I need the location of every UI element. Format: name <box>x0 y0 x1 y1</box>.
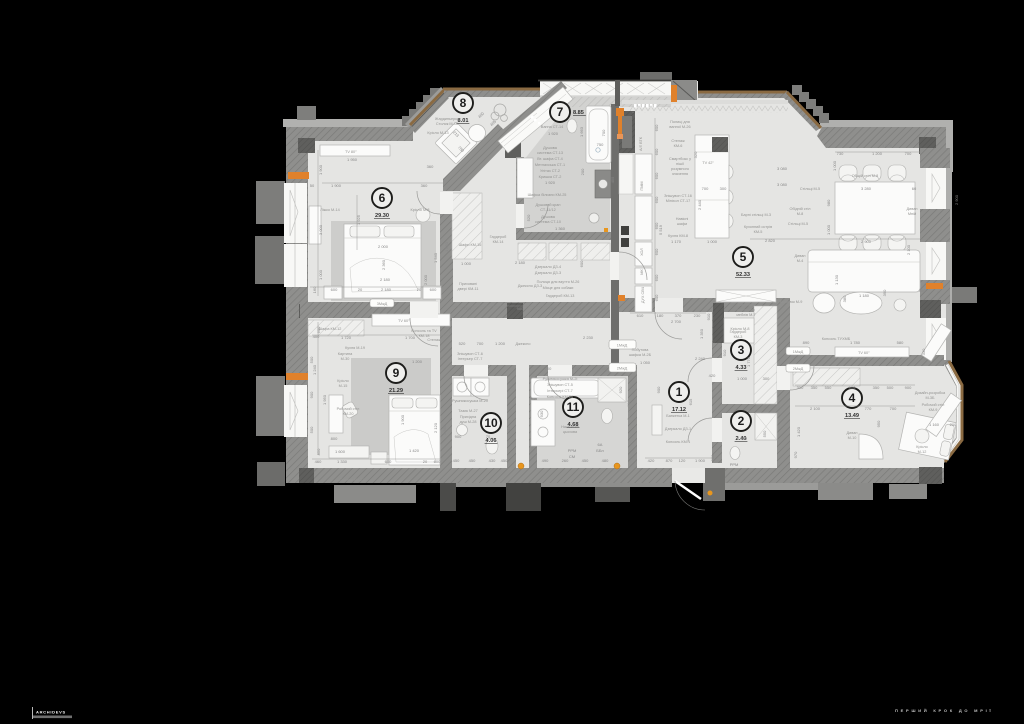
svg-text:5 519: 5 519 <box>658 224 663 235</box>
svg-text:4: 4 <box>849 391 856 405</box>
svg-text:2 000: 2 000 <box>378 244 389 249</box>
svg-text:380: 380 <box>842 295 847 302</box>
svg-text:М-8: М-8 <box>797 212 804 216</box>
svg-text:4.33: 4.33 <box>736 365 747 371</box>
svg-text:Гардероб КМ-13: Гардероб КМ-13 <box>546 294 575 298</box>
svg-text:1 330: 1 330 <box>337 459 348 464</box>
svg-text:1 720: 1 720 <box>341 335 352 340</box>
svg-text:Вт. шафа СТ-4: Вт. шафа СТ-4 <box>537 157 563 161</box>
svg-text:11: 11 <box>567 400 580 414</box>
svg-text:600: 600 <box>654 196 659 203</box>
svg-text:600: 600 <box>316 326 321 333</box>
svg-text:1 170: 1 170 <box>671 239 682 244</box>
svg-text:М-15: М-15 <box>339 384 348 388</box>
svg-text:600: 600 <box>434 459 441 464</box>
svg-text:2 180: 2 180 <box>381 287 392 292</box>
svg-text:Мній: Мній <box>908 212 916 216</box>
svg-text:TV 60″: TV 60″ <box>398 319 410 323</box>
svg-text:3: 3 <box>738 343 745 357</box>
svg-text:750: 750 <box>597 142 604 147</box>
svg-text:Диван: Диван <box>795 254 806 258</box>
svg-text:600: 600 <box>331 287 338 292</box>
svg-text:2 230: 2 230 <box>583 335 594 340</box>
svg-text:2 180: 2 180 <box>380 277 391 282</box>
svg-text:450: 450 <box>582 458 589 463</box>
svg-text:50: 50 <box>310 183 315 188</box>
svg-text:20: 20 <box>417 287 422 292</box>
svg-text:Шафи КМ-16: Шафи КМ-16 <box>459 243 482 247</box>
svg-text:29.30: 29.30 <box>375 213 389 219</box>
svg-text:600: 600 <box>654 148 659 155</box>
svg-text:1 780: 1 780 <box>850 340 861 345</box>
svg-text:200: 200 <box>950 422 957 427</box>
svg-text:700: 700 <box>573 366 580 371</box>
svg-text:Крісло: Крісло <box>916 445 927 449</box>
svg-text:1 000: 1 000 <box>461 261 472 266</box>
svg-text:1 900: 1 900 <box>318 164 323 175</box>
svg-text:600: 600 <box>579 260 584 267</box>
svg-text:Комплект: Комплект <box>738 303 755 307</box>
svg-text:Рушникосушка М-21: Рушникосушка М-21 <box>452 399 488 403</box>
svg-text:Картина: Картина <box>338 352 353 356</box>
svg-text:душ М-28: душ М-28 <box>460 420 477 424</box>
svg-text:500: 500 <box>309 426 314 433</box>
svg-text:1 900: 1 900 <box>400 414 405 425</box>
svg-text:500: 500 <box>887 385 894 390</box>
svg-text:770: 770 <box>865 406 872 411</box>
svg-text:1МжД: 1МжД <box>793 350 804 354</box>
svg-text:шафка М-2Б: шафка М-2Б <box>629 353 652 357</box>
svg-text:900: 900 <box>517 306 524 311</box>
svg-text:1 000: 1 000 <box>826 224 831 235</box>
svg-text:490: 490 <box>542 458 549 463</box>
svg-text:980: 980 <box>826 199 831 206</box>
svg-text:Побутова: Побутова <box>632 348 650 352</box>
svg-text:Полиця для взуття М-26: Полиця для взуття М-26 <box>537 280 580 284</box>
svg-text:280: 280 <box>710 454 715 461</box>
svg-text:180: 180 <box>657 313 664 318</box>
svg-text:РРМ: РРМ <box>568 448 577 453</box>
svg-text:2: 2 <box>738 414 745 428</box>
svg-text:КМ-18: КМ-18 <box>419 334 430 338</box>
svg-text:КМ-5: КМ-5 <box>754 230 763 234</box>
svg-text:2 900: 2 900 <box>954 194 959 205</box>
svg-text:М-3Б: М-3Б <box>925 396 935 400</box>
svg-text:900: 900 <box>309 391 314 398</box>
svg-text:Настільна: Настільна <box>561 425 580 429</box>
svg-text:1 240: 1 240 <box>312 364 317 375</box>
svg-text:300: 300 <box>763 376 770 381</box>
svg-text:1 925: 1 925 <box>356 214 361 225</box>
svg-text:700: 700 <box>545 366 552 371</box>
svg-text:Інтерьері СТ-7: Інтерьері СТ-7 <box>547 389 572 393</box>
svg-text:Дизайн-розробка: Дизайн-розробка <box>915 391 946 395</box>
svg-text:1 000: 1 000 <box>737 436 748 441</box>
svg-text:Гардероб: Гардероб <box>730 330 748 334</box>
svg-text:700: 700 <box>477 341 484 346</box>
svg-text:Місце для собаки: Місце для собаки <box>543 286 574 290</box>
svg-text:700: 700 <box>905 151 912 156</box>
svg-text:200: 200 <box>580 168 585 175</box>
svg-text:1 000: 1 000 <box>318 269 323 280</box>
svg-text:цьохова: цьохова <box>563 430 578 434</box>
svg-text:ХОЛ: ХОЛ <box>640 248 644 256</box>
svg-text:370: 370 <box>675 313 682 318</box>
svg-text:Дзеркало ДЗ-3: Дзеркало ДЗ-3 <box>535 271 561 275</box>
svg-text:450: 450 <box>469 458 476 463</box>
svg-text:120: 120 <box>679 458 686 463</box>
svg-text:2 440: 2 440 <box>697 199 702 210</box>
svg-text:Знішувон СТ-5: Знішувон СТ-5 <box>547 383 573 387</box>
svg-text:Джексно ДЗ-3: Джексно ДЗ-3 <box>518 284 542 288</box>
svg-text:910: 910 <box>722 349 727 356</box>
svg-text:450: 450 <box>501 458 508 463</box>
svg-text:3 000: 3 000 <box>318 224 323 235</box>
svg-text:600: 600 <box>654 172 659 179</box>
svg-text:Дзеркало ДЗ-4: Дзеркало ДЗ-4 <box>535 265 561 269</box>
svg-text:Консоль КМ-1: Консоль КМ-1 <box>666 440 690 444</box>
svg-text:1 160: 1 160 <box>929 422 940 427</box>
svg-text:Кухонний острів: Кухонний острів <box>744 225 772 229</box>
svg-text:Навісні: Навісні <box>676 217 689 221</box>
svg-text:Карниз М-2: Карниз М-2 <box>627 400 631 420</box>
svg-text:700: 700 <box>601 129 606 136</box>
svg-text:3 550: 3 550 <box>442 424 447 435</box>
svg-text:600: 600 <box>448 326 453 333</box>
svg-text:900: 900 <box>455 434 462 439</box>
svg-text:Робочий стіл: Робочий стіл <box>337 407 360 411</box>
svg-text:700: 700 <box>549 306 556 311</box>
svg-text:ванної М-26: ванної М-26 <box>669 125 690 129</box>
svg-text:Мініхол СТ-17: Мініхол СТ-17 <box>666 199 691 203</box>
svg-text:260: 260 <box>562 458 569 463</box>
svg-text:320: 320 <box>693 151 698 158</box>
svg-text:1 850: 1 850 <box>444 241 449 252</box>
svg-text:950: 950 <box>876 420 881 427</box>
svg-text:330: 330 <box>921 348 926 355</box>
svg-text:ARCHIDEVS: ARCHIDEVS <box>36 710 66 715</box>
svg-text:3МжД: 3МжД <box>377 302 388 306</box>
svg-text:360: 360 <box>421 183 428 188</box>
svg-text:610: 610 <box>637 313 644 318</box>
svg-text:1 360: 1 360 <box>555 226 566 231</box>
svg-text:9: 9 <box>393 366 400 380</box>
svg-text:2 240: 2 240 <box>695 356 706 361</box>
svg-text:двері КМ-11: двері КМ-11 <box>458 287 479 291</box>
svg-text:1 950: 1 950 <box>347 157 358 162</box>
svg-text:800: 800 <box>331 436 338 441</box>
svg-text:РРМ: РРМ <box>730 462 739 467</box>
svg-text:Полиці для: Полиці для <box>670 120 690 124</box>
svg-text:Диван: Диван <box>847 431 858 435</box>
svg-text:1 950: 1 950 <box>322 394 327 405</box>
svg-text:система СТ-13: система СТ-13 <box>537 151 563 155</box>
svg-text:1 000: 1 000 <box>461 306 472 311</box>
svg-text:430: 430 <box>489 458 496 463</box>
svg-text:розумного: розумного <box>671 167 689 171</box>
svg-text:Обідній стіл: Обідній стіл <box>790 207 811 211</box>
svg-text:1 770: 1 770 <box>746 356 751 367</box>
svg-text:Банкетка М-1: Банкетка М-1 <box>666 414 690 418</box>
svg-text:1 420: 1 420 <box>796 426 801 437</box>
svg-text:550: 550 <box>762 430 767 437</box>
svg-text:Шафа КМ-12: Шафа КМ-12 <box>319 327 342 331</box>
svg-text:2 900: 2 900 <box>861 239 872 244</box>
svg-text:Консоль ТУХМБ: Консоль ТУХМБ <box>822 337 851 341</box>
svg-text:7: 7 <box>557 105 564 119</box>
svg-text:1 050: 1 050 <box>640 360 651 365</box>
svg-text:1: 1 <box>676 385 683 399</box>
svg-text:310: 310 <box>797 385 804 390</box>
svg-text:480: 480 <box>602 458 609 463</box>
svg-text:2 700: 2 700 <box>671 319 682 324</box>
svg-text:230: 230 <box>694 313 701 318</box>
svg-text:1 920: 1 920 <box>548 131 559 136</box>
svg-text:2 360: 2 360 <box>381 259 386 270</box>
svg-text:1 200: 1 200 <box>872 151 883 156</box>
svg-text:М-30: М-30 <box>341 357 350 361</box>
svg-text:900: 900 <box>919 288 926 293</box>
svg-text:20: 20 <box>423 459 428 464</box>
svg-text:Смартбокс у: Смартбокс у <box>669 157 691 161</box>
svg-text:система СТ-10: система СТ-10 <box>535 220 561 224</box>
svg-text:Ванна СТ-14: Ванна СТ-14 <box>541 125 563 129</box>
svg-text:Душова: Душова <box>541 215 556 219</box>
svg-text:3 080: 3 080 <box>777 182 788 187</box>
svg-text:А/Л ВТК: А/Л ВТК <box>639 136 643 151</box>
svg-text:ПММ: ПММ <box>640 181 644 190</box>
svg-text:8: 8 <box>460 96 467 110</box>
svg-text:1 130: 1 130 <box>834 274 839 285</box>
svg-text:ББн: ББн <box>596 448 603 453</box>
svg-text:10: 10 <box>484 416 498 430</box>
svg-text:меблів М-7: меблів М-7 <box>736 313 755 317</box>
svg-text:TV 80″: TV 80″ <box>345 150 357 154</box>
svg-text:КМ-9: КМ-9 <box>929 408 938 412</box>
svg-text:17.12: 17.12 <box>672 407 686 413</box>
svg-text:Стільці М-5: Стільці М-5 <box>800 187 820 191</box>
svg-text:1 180: 1 180 <box>859 293 870 298</box>
svg-text:600: 600 <box>654 274 659 281</box>
svg-text:шафи: шафи <box>677 222 687 226</box>
svg-text:М-12: М-12 <box>918 450 927 454</box>
svg-text:Знішувон СТ-6: Знішувон СТ-6 <box>457 352 483 356</box>
svg-text:2 180: 2 180 <box>515 260 526 265</box>
svg-text:850: 850 <box>316 448 321 455</box>
svg-text:890: 890 <box>803 340 810 345</box>
svg-text:Крісло М-8: Крісло М-8 <box>410 208 429 212</box>
svg-text:Килимок М-9: Килимок М-9 <box>780 300 803 304</box>
svg-text:350: 350 <box>811 385 818 390</box>
svg-text:2 100: 2 100 <box>810 406 821 411</box>
svg-text:СТ-11/12: СТ-11/12 <box>540 208 555 212</box>
svg-text:1 900: 1 900 <box>695 458 706 463</box>
svg-text:1 000: 1 000 <box>737 376 748 381</box>
svg-text:300: 300 <box>720 186 727 191</box>
svg-text:Душовий кран: Душовий кран <box>535 203 560 207</box>
svg-text:2МжД: 2МжД <box>617 367 628 371</box>
svg-text:900: 900 <box>656 386 661 393</box>
svg-text:Кришка СТ-2: Кришка СТ-2 <box>539 175 562 179</box>
svg-text:970: 970 <box>793 451 798 458</box>
svg-text:1 200: 1 200 <box>495 341 506 346</box>
svg-text:TV 42″: TV 42″ <box>702 161 714 165</box>
svg-text:390: 390 <box>882 289 887 296</box>
svg-text:Дзеркало ДЗ-1: Дзеркало ДЗ-1 <box>665 427 691 431</box>
svg-text:2 100: 2 100 <box>906 244 911 255</box>
svg-text:Інтерьер СТ-7: Інтерьер СТ-7 <box>458 357 483 361</box>
svg-text:Ліжко М-14: Ліжко М-14 <box>320 208 339 212</box>
svg-text:TV 60″: TV 60″ <box>858 351 870 355</box>
svg-text:М-4: М-4 <box>797 259 804 263</box>
svg-text:420: 420 <box>709 373 716 378</box>
svg-text:20: 20 <box>358 287 363 292</box>
svg-text:3 280: 3 280 <box>861 186 872 191</box>
svg-text:600: 600 <box>654 248 659 255</box>
svg-text:460: 460 <box>315 459 322 464</box>
svg-text:700: 700 <box>702 186 709 191</box>
svg-text:455: 455 <box>610 176 615 183</box>
svg-text:700: 700 <box>890 406 897 411</box>
svg-text:3 080: 3 080 <box>777 166 788 171</box>
svg-text:900: 900 <box>575 306 582 311</box>
svg-text:ДУХ СВЧ: ДУХ СВЧ <box>641 286 645 303</box>
svg-text:400: 400 <box>601 366 608 371</box>
svg-text:6: 6 <box>379 191 386 205</box>
svg-text:СМ: СМ <box>569 454 575 459</box>
svg-text:1 540: 1 540 <box>433 252 438 263</box>
svg-text:600: 600 <box>430 287 437 292</box>
svg-text:Душова: Душова <box>543 146 558 150</box>
svg-text:70: 70 <box>486 434 491 439</box>
svg-text:1 663: 1 663 <box>579 126 584 137</box>
svg-text:60: 60 <box>912 186 917 191</box>
svg-text:1 200: 1 200 <box>412 359 423 364</box>
svg-text:930: 930 <box>539 410 544 417</box>
svg-text:790: 790 <box>599 306 606 311</box>
svg-text:870: 870 <box>666 458 673 463</box>
svg-text:615: 615 <box>688 398 693 405</box>
svg-text:600: 600 <box>385 459 392 464</box>
svg-text:1 000: 1 000 <box>707 239 718 244</box>
svg-text:2МжД: 2МжД <box>793 367 804 371</box>
svg-text:1 900: 1 900 <box>331 183 342 188</box>
svg-text:8.01: 8.01 <box>458 118 469 124</box>
svg-text:Приховані: Приховані <box>459 282 477 286</box>
svg-text:900: 900 <box>905 385 912 390</box>
svg-text:450: 450 <box>453 458 460 463</box>
svg-text:Кухня М-19: Кухня М-19 <box>345 346 365 350</box>
svg-text:Кухня КМ-8: Кухня КМ-8 <box>668 234 688 238</box>
svg-text:Крісло М-13: Крісло М-13 <box>427 131 448 135</box>
svg-text:М-10: М-10 <box>848 436 857 440</box>
svg-text:2 820: 2 820 <box>765 238 776 243</box>
svg-text:520: 520 <box>459 341 466 346</box>
svg-text:13.49: 13.49 <box>845 413 859 419</box>
svg-text:нішії: нішії <box>676 162 685 166</box>
svg-text:Консоль та TV: Консоль та TV <box>411 329 437 333</box>
svg-text:МК: МК <box>640 269 644 275</box>
svg-text:ПЕРШИЙ КРОК ДО МРІЇ: ПЕРШИЙ КРОК ДО МРІЇ <box>895 708 993 713</box>
svg-text:Робочий стіл: Робочий стіл <box>922 403 945 407</box>
svg-text:400: 400 <box>313 334 320 339</box>
svg-text:КМ-3: КМ-3 <box>734 335 743 339</box>
svg-text:Прихідна: Прихідна <box>460 415 477 419</box>
svg-text:520: 520 <box>526 214 531 221</box>
svg-text:Стелаж: Стелаж <box>671 139 685 143</box>
svg-text:1 700: 1 700 <box>405 335 416 340</box>
svg-text:600: 600 <box>654 124 659 131</box>
svg-text:900: 900 <box>849 385 856 390</box>
svg-text:1 600: 1 600 <box>335 449 346 454</box>
svg-text:Консоль КМ-26: Консоль КМ-26 <box>547 395 574 399</box>
svg-text:600: 600 <box>654 294 659 301</box>
svg-text:Тазик М-27: Тазик М-27 <box>458 409 477 413</box>
svg-text:910: 910 <box>706 313 711 320</box>
svg-text:6А: 6А <box>598 442 603 447</box>
svg-text:Жардиньерка: Жардиньерка <box>435 117 460 121</box>
svg-text:корпусних: корпусних <box>737 308 755 312</box>
svg-text:Крісло: Крісло <box>337 379 348 383</box>
svg-text:1МжД: 1МжД <box>617 344 628 348</box>
svg-text:543: 543 <box>506 426 511 433</box>
svg-text:2 120: 2 120 <box>433 422 438 433</box>
svg-text:Знішувон СТ-16: Знішувон СТ-16 <box>664 194 692 198</box>
svg-text:350: 350 <box>873 385 880 390</box>
svg-text:КМ-6: КМ-6 <box>674 144 683 148</box>
svg-text:Шафка білизни КМ-25: Шафка білизни КМ-25 <box>528 193 567 197</box>
svg-text:920: 920 <box>618 386 623 393</box>
svg-text:1 000: 1 000 <box>882 143 893 148</box>
svg-text:52.33: 52.33 <box>736 272 750 278</box>
svg-text:1 000: 1 000 <box>832 160 837 171</box>
svg-text:1 350: 1 350 <box>699 328 704 339</box>
svg-text:5: 5 <box>740 250 747 264</box>
svg-text:2 000: 2 000 <box>423 274 428 285</box>
svg-text:Стільці М-5: Стільці М-5 <box>788 222 808 226</box>
svg-text:Стелаж: Стелаж <box>427 338 441 342</box>
svg-text:500: 500 <box>309 356 314 363</box>
svg-text:значення: значення <box>672 172 688 176</box>
svg-text:580: 580 <box>897 340 904 345</box>
svg-text:Барні стільці М-3: Барні стільці М-3 <box>741 213 771 217</box>
svg-text:Общій стіл М-8: Общій стіл М-8 <box>852 174 879 178</box>
svg-text:730: 730 <box>837 151 844 156</box>
svg-text:КМ-14: КМ-14 <box>493 240 504 244</box>
svg-text:Столик М-16: Столик М-16 <box>436 122 458 126</box>
svg-text:420: 420 <box>648 458 655 463</box>
svg-text:КМ-20: КМ-20 <box>343 412 354 416</box>
svg-text:8.85: 8.85 <box>573 110 584 116</box>
svg-text:Рушникосушка М-2і: Рушникосушка М-2і <box>543 377 578 381</box>
svg-text:Стелаж КМ-21: Стелаж КМ-21 <box>339 478 364 482</box>
svg-text:1 920: 1 920 <box>545 180 556 185</box>
svg-text:1 420: 1 420 <box>409 448 420 453</box>
svg-text:360: 360 <box>427 164 434 169</box>
svg-text:Гардероб: Гардероб <box>490 235 508 239</box>
svg-text:21.29: 21.29 <box>389 388 403 394</box>
svg-text:550: 550 <box>825 385 832 390</box>
svg-text:Метлахська СТ-1: Метлахська СТ-1 <box>535 163 565 167</box>
svg-text:Унітаз СТ-2: Унітаз СТ-2 <box>540 169 560 173</box>
svg-text:Диван: Диван <box>907 207 918 211</box>
svg-text:Джексно: Джексно <box>515 342 530 346</box>
